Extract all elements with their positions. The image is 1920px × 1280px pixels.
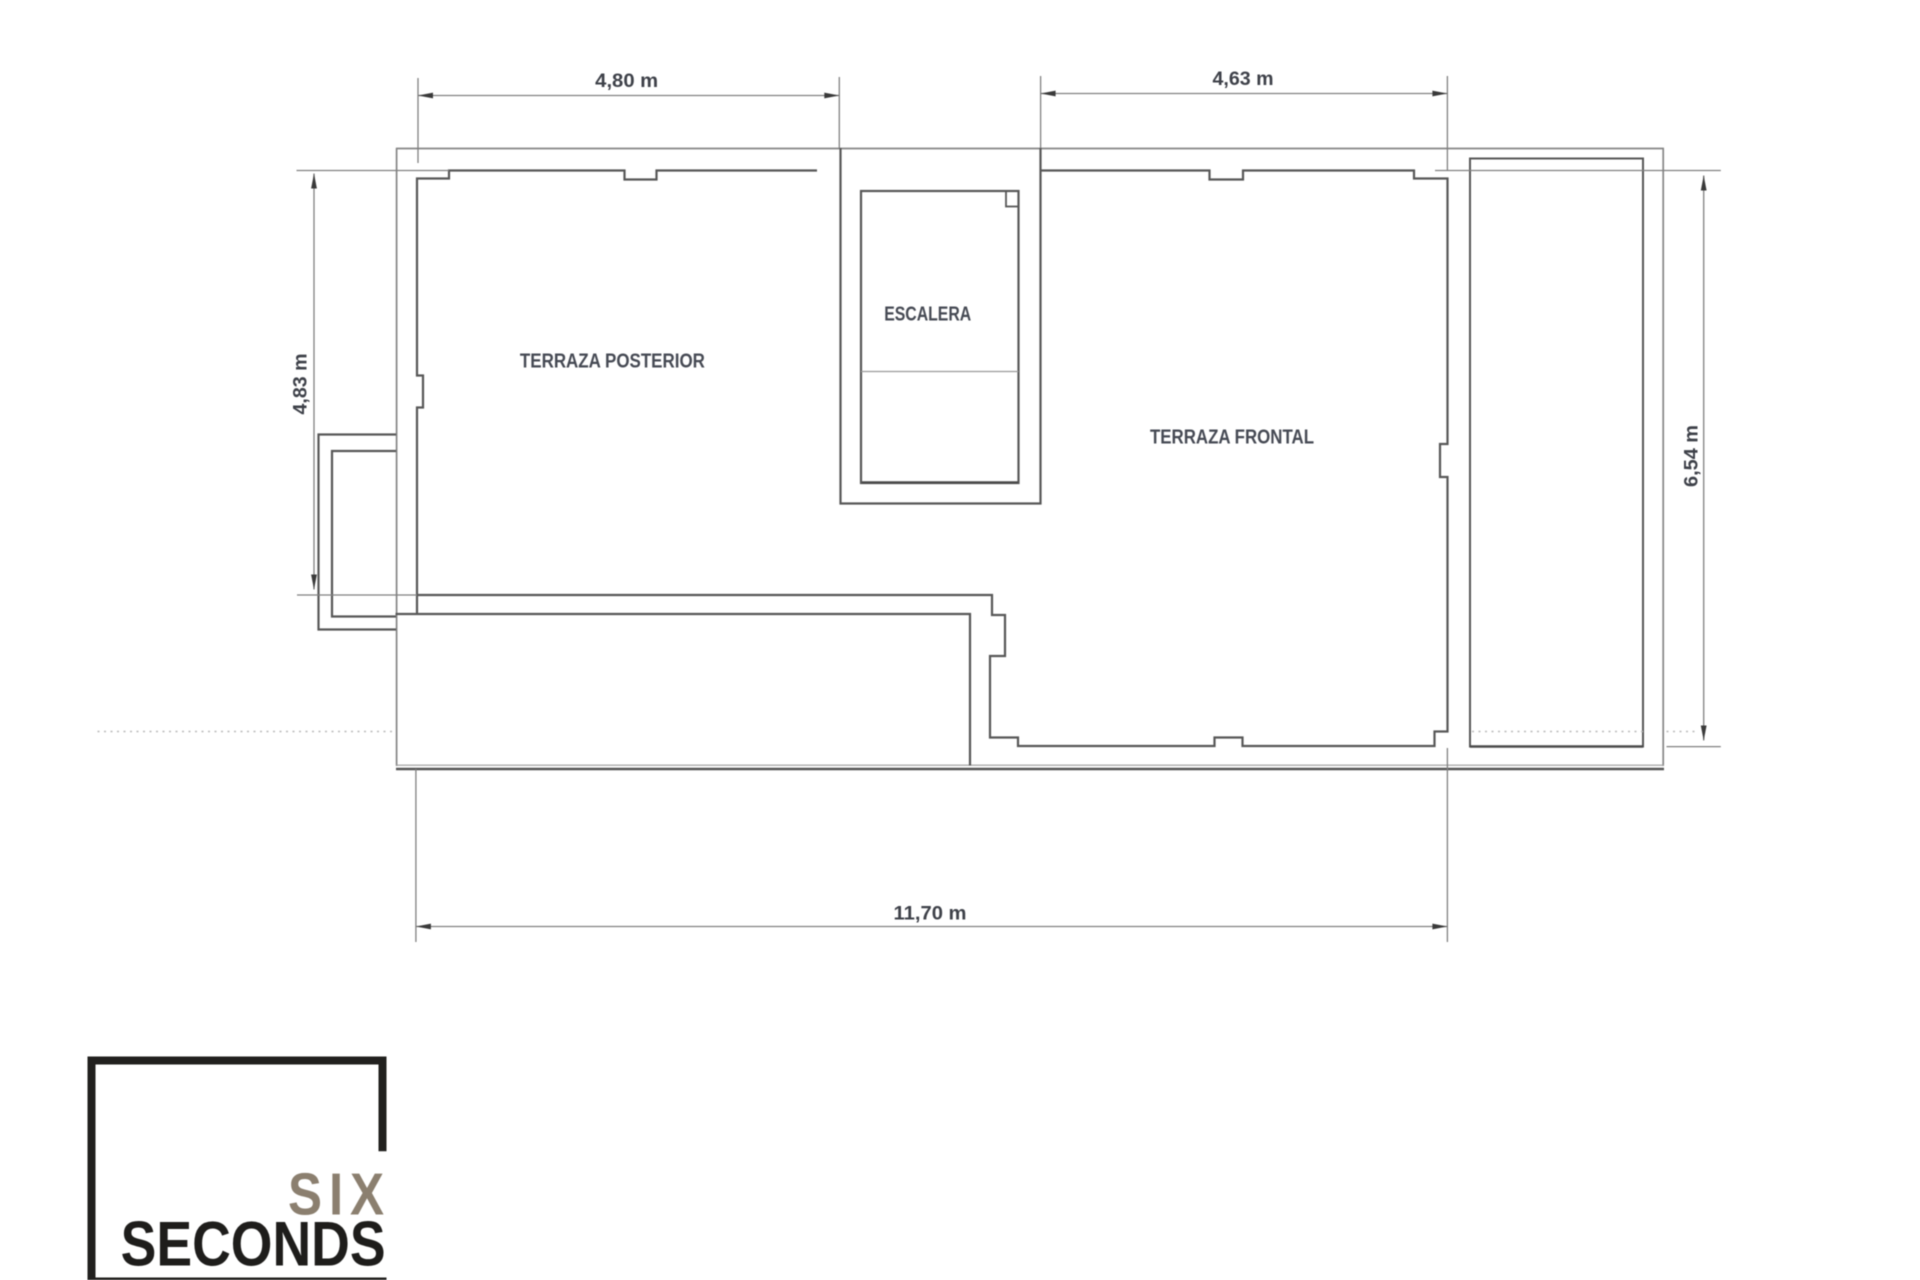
svg-text:4,83 m: 4,83 m [290, 354, 312, 415]
svg-text:SECONDS: SECONDS [121, 1210, 386, 1280]
svg-text:ESCALERA: ESCALERA [884, 303, 971, 326]
svg-text:4,63 m: 4,63 m [1213, 68, 1274, 90]
svg-text:11,70 m: 11,70 m [894, 903, 967, 925]
svg-text:4,80 m: 4,80 m [595, 70, 658, 92]
svg-text:TERRAZA POSTERIOR: TERRAZA POSTERIOR [520, 350, 705, 373]
svg-text:TERRAZA FRONTAL: TERRAZA FRONTAL [1150, 426, 1314, 449]
svg-text:6,54 m: 6,54 m [1681, 425, 1703, 487]
